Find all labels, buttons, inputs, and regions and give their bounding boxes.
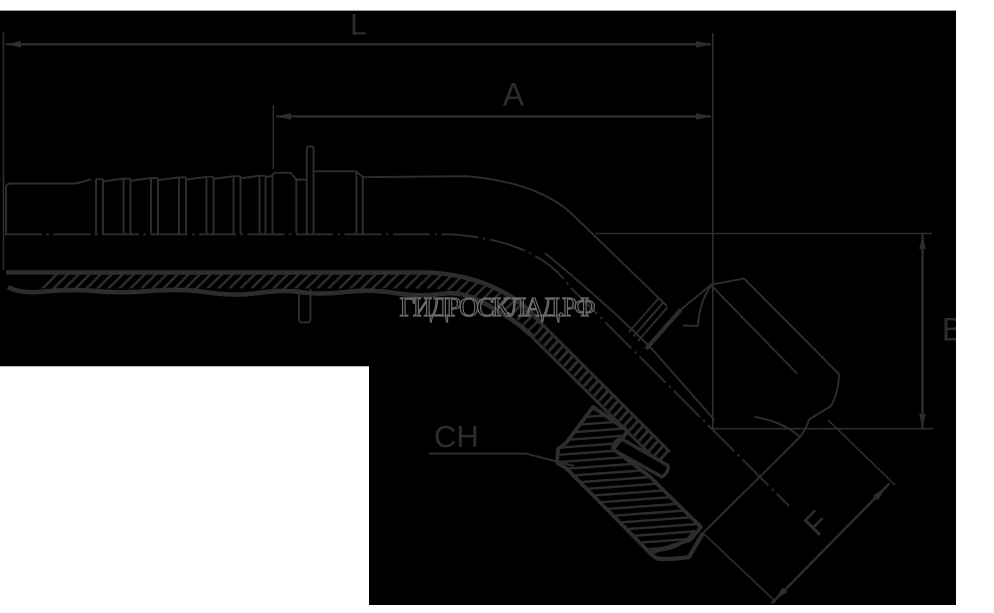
- svg-text:ГИДРОСКЛАД.РФ: ГИДРОСКЛАД.РФ: [400, 292, 596, 322]
- svg-text:L: L: [350, 8, 367, 41]
- svg-text:A: A: [503, 77, 525, 113]
- svg-text:CH: CH: [434, 419, 479, 454]
